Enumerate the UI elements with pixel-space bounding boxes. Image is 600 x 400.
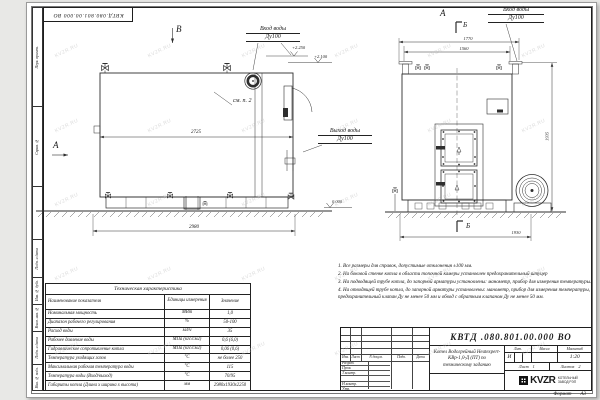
dim-1770: 1770 [450,37,486,42]
section-b-bottom-label: Б [466,223,470,231]
title-block: КВТД .080.801.00.000 ВО Изм. Лист N доку… [340,327,592,391]
spec-col-header: Наименование показателя [46,295,164,310]
note-line: 1. Все размеры для справок, допустимые о… [338,263,592,270]
view-a-top-label: А [440,9,446,19]
view-a-label: А [53,141,59,151]
elevation-2100: +2.100 [314,55,327,60]
spec-col-header: Единицы измерения [164,295,209,310]
view-b-label: В [176,25,182,35]
dim-2980: 2980 [180,225,208,230]
spec-cell: Температура уходящих газов [46,354,164,362]
format-note: Формат А3 [508,392,592,397]
sheet-value: 1 [533,364,535,369]
rev-header: N докум. [367,355,385,359]
water-inlet-right-line1: Вход воды [488,7,544,15]
note-line: 4. На отводящей трубе котла, до запорной… [338,287,592,301]
water-inlet-right-line2: Ду100 [488,15,544,23]
water-outlet-label: Выход воды Ду100 [318,128,372,144]
table-row: Номинальная мощностьМВт1,0 [46,310,250,319]
mass-value [531,353,557,362]
rev-header: Лист [347,355,365,359]
spec-cell: 70/95 [209,372,250,380]
front-view [385,22,566,241]
sheets-value: 2 [578,364,580,369]
spec-table: Техническая характеристика Наименование … [45,283,251,391]
spec-cell: 115 [209,363,250,371]
sheet-label: Лист [519,364,529,369]
spec-cell: Номинальная мощность [46,310,164,318]
spec-cell: Температура воды (Вход/выход) [46,372,164,380]
spec-cell: °С [164,372,209,380]
sheets-label: Листов [561,364,575,369]
water-inlet-left-line1: Вход воды [246,26,300,34]
table-row: Габариты котла (Длина х ширина х высота)… [46,381,250,390]
format-value: А3 [580,392,586,397]
scale-label: Масштаб [557,346,592,352]
company-name-line2: ЗАВОД РЭП [558,381,578,385]
format-label: Формат [553,392,571,397]
dim-1560: 1560 [446,47,482,52]
title-block-right: Лит. Масса Масштаб И 1:20 Лист 1 Листов … [504,346,592,391]
table-row: Температура воды (Вход/выход)°С70/95 [46,372,250,381]
lit-label: Лит. [505,346,531,352]
table-row: Расход водым3/ч35 [46,328,250,337]
spec-cell: Рабочее давление воды [46,337,164,345]
elevation-zero: 0.000 [332,200,342,205]
spec-cell: 0,06 (0,6) [209,346,250,354]
table-row: Температура уходящих газов°Сне более 250 [46,354,250,363]
company-name: КОТЕЛЬНЫЙ ЗАВОД РЭП [558,377,578,385]
dim-1935: 1935 [546,124,551,148]
kvzr-logo-icon [519,376,528,385]
spec-cell: Габариты котла (Длина х ширина х высота) [46,381,164,390]
sheets-cell: Листов 2 [549,363,592,371]
spec-col-header: Значение [209,295,250,310]
spec-cell: 2980х1930х2250 [209,381,250,390]
spec-cell: Максимальная рабочая температура воды [46,363,164,371]
note-line: 2. На боковой стенке котла в области топ… [338,271,592,278]
water-outlet-line2: Ду100 [318,136,372,144]
spec-cell: МПа (кгс/см2) [164,337,209,345]
water-inlet-left-label: Вход воды Ду100 [246,26,300,42]
table-row: Гидравлическое сопротивление котлаМПа (к… [46,346,250,355]
spec-cell: °С [164,354,209,362]
water-inlet-left-line2: Ду100 [246,34,300,42]
drawing-sheet: Перв. примен. Справ. № Подп. и дата Инв.… [0,0,600,400]
table-row: Рабочее давление водыМПа (кгс/см2)0,6 (6… [46,337,250,346]
rev-header: Подп. [393,355,411,359]
company-logo: KVZR КОТЕЛЬНЫЙ ЗАВОД РЭП [505,371,592,390]
elevation-2250: +2.250 [292,46,305,51]
spec-cell: Расход воды [46,328,164,336]
doc-number: КВТД .080.801.00.000 ВО [429,328,592,346]
spec-cell: МПа (кгс/см2) [164,346,209,354]
table-row: Максимальная рабочая температура воды°С1… [46,363,250,372]
table-row: Диапазон рабочего регулирования%50-100 [46,319,250,328]
spec-table-title: Техническая характеристика [46,284,250,295]
lit-value: И [505,353,514,362]
spec-cell: 50-100 [209,319,250,327]
spec-cell: 1,0 [209,310,250,318]
spec-cell: МВт [164,310,209,318]
spec-cell: м3/ч [164,328,209,336]
scale-value: 1:20 [557,353,592,362]
spec-cell: не более 250 [209,354,250,362]
sign-row: Утв. [341,387,390,392]
section-b-top-label: Б [463,22,467,30]
spec-cell: мм [164,381,209,390]
spec-cell: 35 [209,328,250,336]
dim-2725: 2725 [182,130,210,135]
mass-label: Масса [531,346,557,352]
spec-cell: 0,6 (6,0) [209,337,250,345]
sheet-cell: Лист 1 [505,363,549,371]
water-inlet-right-label: Вход воды Ду100 [488,7,544,23]
water-outlet-line1: Выход воды [318,128,372,136]
doc-description-cell: Котел Водогрейный Heatexpert-КВр-1,0-Д (… [429,346,504,391]
kvzr-logo-text: KVZR [530,375,555,386]
rev-header: Дата [412,355,430,359]
spec-table-header: Наименование показателя Единицы измерени… [46,295,250,311]
dim-1930: 1930 [498,231,534,236]
doc-description: Котел Водогрейный Heatexpert-КВр-1,0-Д (… [430,346,504,374]
callout-see-note2: см. п. 2 [233,98,252,104]
spec-cell: °С [164,363,209,371]
notes-block: 1. Все размеры для справок, допустимые о… [338,263,592,302]
spec-cell: Диапазон рабочего регулирования [46,319,164,327]
note-line: 3. На подводящей трубе котла, до запорно… [338,279,592,286]
spec-cell: % [164,319,209,327]
spec-cell: Гидравлическое сопротивление котла [46,346,164,354]
